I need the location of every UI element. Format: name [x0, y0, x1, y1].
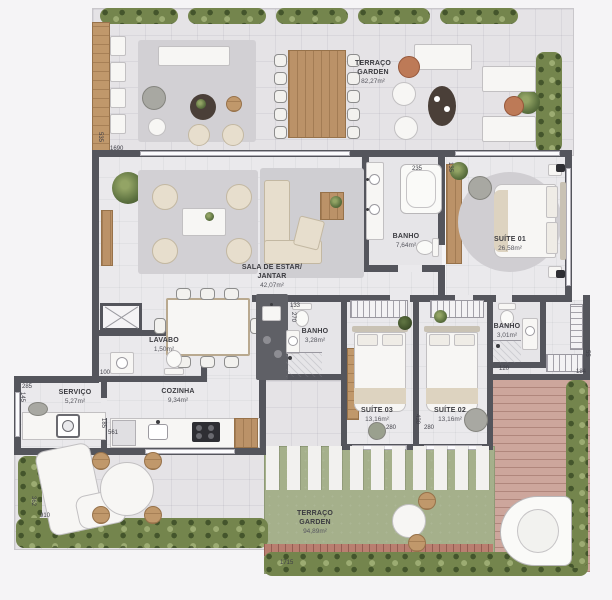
armchair	[226, 238, 252, 264]
garden-table	[392, 504, 426, 538]
dimension-label: 185	[100, 418, 106, 428]
deck-chair	[110, 36, 126, 56]
plant	[330, 196, 342, 208]
door-opening	[496, 295, 512, 302]
shower-head	[496, 344, 500, 348]
faucet	[156, 420, 160, 424]
armchair	[468, 176, 492, 200]
room-area: 26,58m²	[470, 245, 550, 253]
label-banho-suite01: BANHO 7,64m²	[376, 233, 436, 250]
wood-stool	[226, 96, 242, 112]
armchair	[226, 184, 252, 210]
closet-suite03	[350, 300, 408, 318]
garden-chair	[408, 534, 426, 552]
faucet	[366, 208, 369, 211]
closet-hall	[570, 304, 583, 350]
room-name: SALA DE ESTAR/	[222, 264, 322, 273]
sink	[369, 204, 380, 215]
dining-chair	[274, 54, 287, 67]
dimension-label: 55	[584, 350, 590, 357]
burner	[208, 433, 214, 439]
garden-chair	[418, 492, 436, 510]
wall-segment	[92, 150, 99, 382]
dimension-label: 1715	[280, 560, 293, 566]
bed-suite03	[352, 326, 408, 416]
plant	[434, 310, 447, 323]
room-area: 7,64m²	[376, 242, 436, 250]
window	[455, 151, 560, 156]
dimension-label: 535	[97, 132, 103, 142]
label-suite01: SUÍTE 01 26,58m²	[470, 236, 550, 253]
wall-segment	[259, 376, 266, 455]
dimension-label: 135	[447, 162, 453, 172]
pergola-slats	[266, 446, 492, 490]
dimension-label: 561	[108, 430, 118, 436]
armchair	[222, 124, 244, 146]
label-banho-suite02: BANHO 3,01m²	[478, 323, 536, 340]
pillow	[382, 334, 403, 346]
hedge	[440, 8, 518, 24]
room-name: COZINHA	[138, 388, 218, 397]
sink	[369, 174, 380, 185]
pouf	[148, 118, 166, 136]
burner	[208, 425, 214, 431]
outdoor-chair	[144, 452, 162, 470]
dimension-label: 280	[424, 425, 434, 431]
dining-chair	[224, 288, 239, 300]
deck-chair	[110, 114, 126, 134]
room-area: 1,50m²	[128, 346, 200, 354]
room-name: GARDEN	[342, 69, 404, 78]
hedge	[100, 8, 178, 24]
bed-throw	[354, 388, 406, 404]
sun-lounger	[482, 66, 536, 92]
decor	[274, 350, 282, 358]
headboard	[560, 182, 566, 260]
shaft	[100, 303, 142, 331]
outdoor-chair	[92, 506, 110, 524]
lounge-chair	[394, 116, 418, 140]
plant	[196, 99, 206, 109]
room-name: TERRAÇO	[342, 60, 404, 69]
room-name: BANHO	[478, 323, 536, 332]
dimension-label: 362	[30, 496, 36, 506]
room-area: 42,07m²	[222, 282, 322, 290]
wall-segment	[252, 295, 572, 302]
wall-segment	[14, 376, 99, 383]
dining-chair	[274, 126, 287, 139]
label-suite02: SUÍTE 02 13,16m²	[416, 407, 484, 424]
dimension-label: 100	[100, 370, 110, 376]
room-name: TERRAÇO	[280, 510, 350, 519]
decor	[434, 96, 440, 102]
room-name: BANHO	[286, 328, 344, 337]
bed-throw	[426, 388, 478, 404]
room-name: SUÍTE 01	[470, 236, 550, 245]
sconce	[556, 164, 565, 172]
room-area: 94,89m²	[280, 528, 350, 536]
pillow	[357, 334, 378, 346]
dining-chair	[274, 108, 287, 121]
room-name: SUÍTE 02	[416, 407, 484, 416]
room-area: 5,27m²	[35, 398, 115, 406]
label-sala: SALA DE ESTAR/ JANTAR 42,07m²	[222, 264, 322, 290]
terrace-paving	[264, 380, 346, 452]
dining-chair	[176, 288, 191, 300]
burner	[196, 425, 202, 431]
faucet	[366, 178, 369, 181]
dining-chair	[224, 356, 239, 368]
room-name: SUÍTE 03	[343, 407, 411, 416]
coffee-table	[182, 208, 226, 236]
room-area: 13,16m²	[416, 416, 484, 424]
wall-segment	[583, 295, 590, 380]
dining-chair	[347, 108, 360, 121]
dimension-label: 1690	[110, 146, 123, 152]
outdoor-dining-table	[288, 50, 346, 138]
washer	[56, 414, 80, 438]
island-sink	[262, 306, 281, 321]
dining-chair	[347, 90, 360, 103]
dimension-label: 280	[386, 425, 396, 431]
room-name: SERVIÇO	[35, 389, 115, 398]
hedge	[276, 8, 348, 24]
room-area: 3,01m²	[478, 332, 536, 340]
hedge	[358, 8, 430, 24]
bed-suite02	[424, 326, 480, 416]
dimension-label: 910	[40, 513, 50, 519]
shower-head	[288, 356, 292, 360]
plant	[398, 316, 412, 330]
pouf	[142, 86, 166, 110]
jacuzzi-inner	[517, 509, 559, 553]
toilet-tank	[498, 303, 516, 310]
pillow	[454, 334, 475, 346]
terracotta-table	[504, 96, 524, 116]
outdoor-chair	[92, 452, 110, 470]
dining-chair	[274, 90, 287, 103]
label-cozinha: COZINHA 9,34m²	[138, 388, 218, 405]
room-name: JANTAR	[222, 273, 322, 282]
armchair	[152, 238, 178, 264]
dimension-label: 145	[19, 392, 25, 402]
bathtub-inner	[406, 170, 436, 208]
label-lavabo: LAVABO 1,50m²	[128, 337, 200, 354]
dining-chair	[154, 318, 166, 334]
sideboard	[101, 210, 113, 266]
kitchen-sink	[148, 424, 168, 440]
pillow	[429, 334, 450, 346]
dimension-label: 120	[499, 366, 509, 372]
label-terraco-garden-top: TERRAÇO GARDEN 82,27m²	[342, 60, 404, 86]
dining-chair	[274, 72, 287, 85]
dining-chair	[200, 356, 215, 368]
plant	[205, 212, 214, 221]
toilet	[295, 310, 309, 327]
room-name: GARDEN	[280, 519, 350, 528]
window	[566, 168, 571, 286]
window	[140, 151, 350, 156]
label-suite03: SUÍTE 03 13,16m²	[343, 407, 411, 424]
room-area: 9,34m²	[138, 397, 218, 405]
room-name: BANHO	[376, 233, 436, 242]
decor	[263, 336, 271, 344]
room-area: 13,16m²	[343, 416, 411, 424]
dining-chair	[347, 126, 360, 139]
dimension-label: 285	[22, 384, 32, 390]
washer-door	[62, 420, 74, 432]
label-banho-social: BANHO 3,28m²	[286, 328, 344, 345]
label-servico: SERVIÇO 5,27m²	[35, 389, 115, 406]
room-area: 82,27m²	[342, 78, 404, 86]
bench	[414, 44, 472, 70]
floor-plan: TERRAÇO GARDEN 82,27m² SALA DE ESTAR/ JA…	[0, 0, 612, 600]
pouf	[368, 422, 386, 440]
pillow	[546, 186, 558, 218]
dimension-label: 184	[576, 369, 586, 375]
jacuzzi	[500, 496, 572, 566]
deck-chair	[110, 88, 126, 108]
dimension-label: 133	[290, 303, 300, 309]
label-terraco-garden-bottom: TERRAÇO GARDEN 94,89m²	[280, 510, 350, 536]
room-area: 3,28m²	[286, 337, 344, 345]
terrace-sofa	[158, 46, 230, 66]
deck-chair	[110, 62, 126, 82]
dimension-label: 235	[412, 166, 422, 172]
dining-chair	[200, 288, 215, 300]
dimension-label: 430	[414, 414, 420, 424]
dimension-label: 270	[290, 312, 296, 322]
room-name: LAVABO	[128, 337, 200, 346]
kitchen-cabinet	[234, 418, 258, 448]
armchair	[152, 184, 178, 210]
armchair	[188, 124, 210, 146]
faucet	[270, 303, 273, 306]
outdoor-chair	[144, 506, 162, 524]
decor	[444, 106, 450, 112]
wall-segment	[97, 376, 207, 382]
sink	[116, 357, 128, 369]
sun-lounger	[482, 116, 536, 142]
door-opening	[398, 265, 422, 272]
burner	[196, 433, 202, 439]
toilet-tank	[164, 368, 184, 375]
sconce	[556, 270, 565, 278]
hedge	[188, 8, 266, 24]
side-table	[428, 86, 456, 126]
